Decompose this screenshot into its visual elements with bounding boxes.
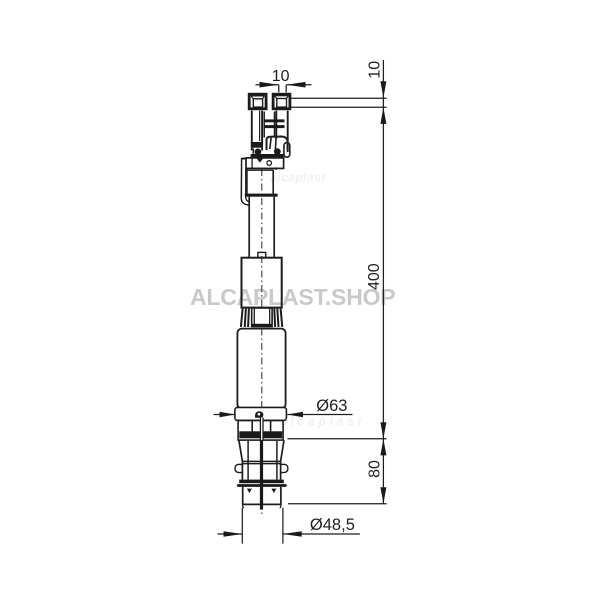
svg-text:80: 80 bbox=[367, 460, 384, 478]
svg-text:10: 10 bbox=[272, 68, 290, 85]
svg-text:Ø48,5: Ø48,5 bbox=[310, 516, 355, 534]
svg-text:10: 10 bbox=[367, 61, 384, 79]
svg-text:alcaplast: alcaplast bbox=[280, 415, 365, 429]
svg-text:Ø63: Ø63 bbox=[316, 397, 347, 415]
svg-text:alcaplast: alcaplast bbox=[270, 171, 326, 185]
svg-text:400: 400 bbox=[366, 263, 383, 290]
svg-text:ALCAPLAST.SHOP: ALCAPLAST.SHOP bbox=[190, 284, 396, 310]
